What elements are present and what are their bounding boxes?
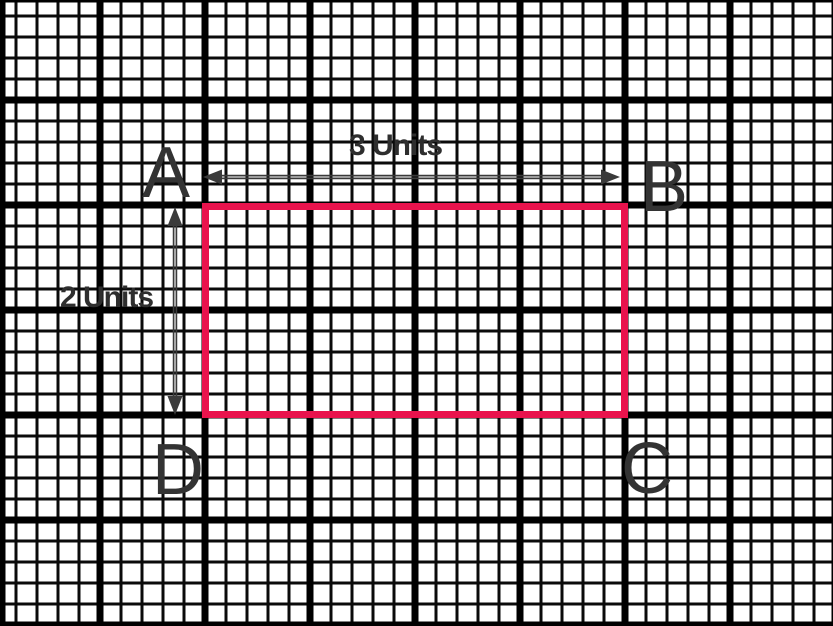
arrowhead-left-icon bbox=[203, 170, 222, 185]
corner-label-c: C bbox=[621, 433, 673, 505]
rectangle-abcd bbox=[202, 203, 628, 418]
arrowhead-right-icon bbox=[601, 170, 620, 185]
horizontal-dimension-arrow bbox=[199, 163, 625, 191]
corner-label-b: B bbox=[640, 151, 688, 223]
vertical-dimension-arrow bbox=[161, 203, 189, 419]
corner-label-d: D bbox=[152, 434, 204, 506]
arrowhead-down-icon bbox=[168, 396, 183, 415]
corner-label-a: A bbox=[142, 137, 190, 209]
geometry-diagram: A B C D 3 Units 2 Units bbox=[0, 0, 833, 626]
width-dimension-label: 3 Units bbox=[349, 131, 442, 161]
height-dimension-label: 2 Units bbox=[60, 283, 153, 313]
